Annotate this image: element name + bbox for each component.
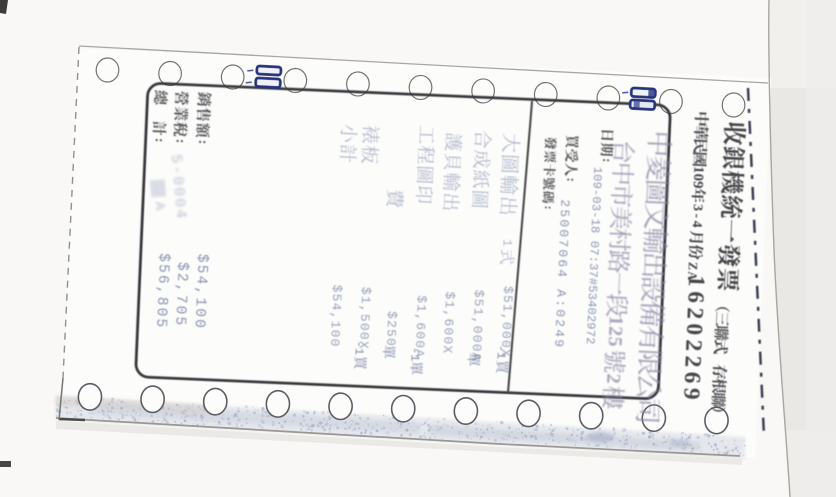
svg-text:1: 1 bbox=[683, 275, 709, 288]
svg-text:$2,705: $2,705 bbox=[171, 262, 190, 328]
svg-text:6: 6 bbox=[682, 291, 708, 304]
svg-text:2: 2 bbox=[682, 307, 708, 320]
svg-text::: : bbox=[564, 177, 579, 182]
svg-text:-1: -1 bbox=[493, 344, 508, 359]
svg-text::: : bbox=[151, 138, 166, 143]
svg-text::: : bbox=[195, 139, 210, 144]
svg-text:2: 2 bbox=[679, 355, 705, 368]
svg-text:9: 9 bbox=[678, 387, 704, 400]
svg-text::: : bbox=[600, 158, 615, 163]
svg-text:$54,100: $54,100 bbox=[327, 284, 345, 348]
svg-text:2: 2 bbox=[602, 373, 624, 384]
svg-text:3 - 4: 3 - 4 bbox=[689, 204, 705, 228]
svg-text:$250: $250 bbox=[383, 311, 400, 348]
svg-text:$51,000A: $51,000A bbox=[468, 289, 486, 362]
svg-text:$56,805: $56,805 bbox=[152, 253, 171, 330]
svg-text:0: 0 bbox=[681, 323, 707, 336]
svg-text:125: 125 bbox=[604, 315, 627, 347]
svg-text:1: 1 bbox=[499, 239, 514, 248]
svg-text::: : bbox=[172, 138, 187, 143]
svg-text:109: 109 bbox=[689, 166, 706, 189]
svg-text:6: 6 bbox=[679, 371, 705, 384]
svg-text:-1: -1 bbox=[407, 347, 422, 362]
svg-text:$54,100: $54,100 bbox=[190, 253, 209, 330]
svg-text:2: 2 bbox=[680, 339, 706, 352]
svg-text::: : bbox=[542, 205, 556, 210]
svg-text:$1,600X: $1,600X bbox=[440, 291, 458, 355]
svg-text:-1: -1 bbox=[351, 340, 366, 355]
